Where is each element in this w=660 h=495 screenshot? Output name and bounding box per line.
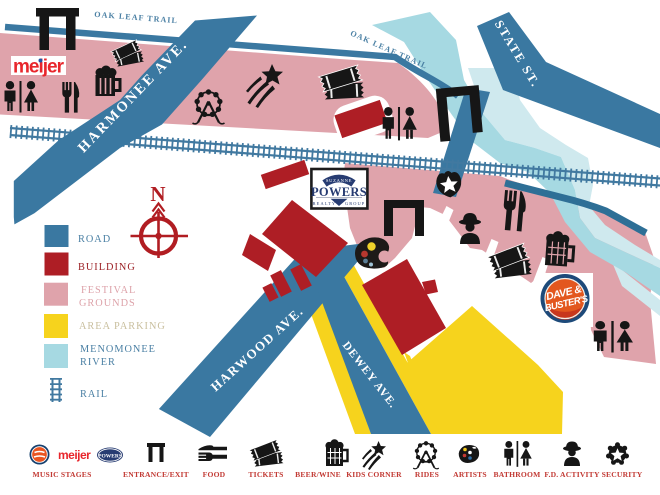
svg-text:BUILDING: BUILDING bbox=[78, 262, 136, 273]
svg-text:FESTIVAL: FESTIVAL bbox=[81, 285, 136, 296]
svg-text:ENTRANCE/EXIT: ENTRANCE/EXIT bbox=[123, 470, 189, 479]
svg-text:SUZANNE: SUZANNE bbox=[326, 178, 352, 183]
svg-text:POWERS: POWERS bbox=[311, 185, 367, 199]
svg-text:MUSIC STAGES: MUSIC STAGES bbox=[32, 470, 91, 479]
svg-text:F.D. ACTIVITY: F.D. ACTIVITY bbox=[544, 470, 600, 479]
svg-text:ARTISTS: ARTISTS bbox=[453, 470, 487, 479]
svg-text:meijer: meijer bbox=[58, 448, 91, 462]
svg-text:AREA PARKING: AREA PARKING bbox=[79, 321, 166, 332]
svg-text:BATHROOM: BATHROOM bbox=[493, 470, 540, 479]
svg-text:FOOD: FOOD bbox=[203, 470, 226, 479]
svg-text:MENOMONEE: MENOMONEE bbox=[80, 344, 156, 355]
svg-text:KIDS CORNER: KIDS CORNER bbox=[346, 470, 402, 479]
svg-text:RAIL: RAIL bbox=[80, 389, 108, 400]
svg-text:ROAD: ROAD bbox=[78, 234, 111, 245]
svg-text:RIDES: RIDES bbox=[415, 470, 439, 479]
svg-text:RIVER: RIVER bbox=[80, 357, 116, 368]
svg-text:N: N bbox=[150, 182, 165, 206]
svg-text:TICKETS: TICKETS bbox=[248, 470, 283, 479]
svg-text:POWERS: POWERS bbox=[98, 454, 122, 460]
svg-text:SECURITY: SECURITY bbox=[602, 470, 643, 479]
svg-text:BEER/WINE: BEER/WINE bbox=[295, 470, 341, 479]
svg-text:GROUNDS: GROUNDS bbox=[79, 298, 136, 309]
